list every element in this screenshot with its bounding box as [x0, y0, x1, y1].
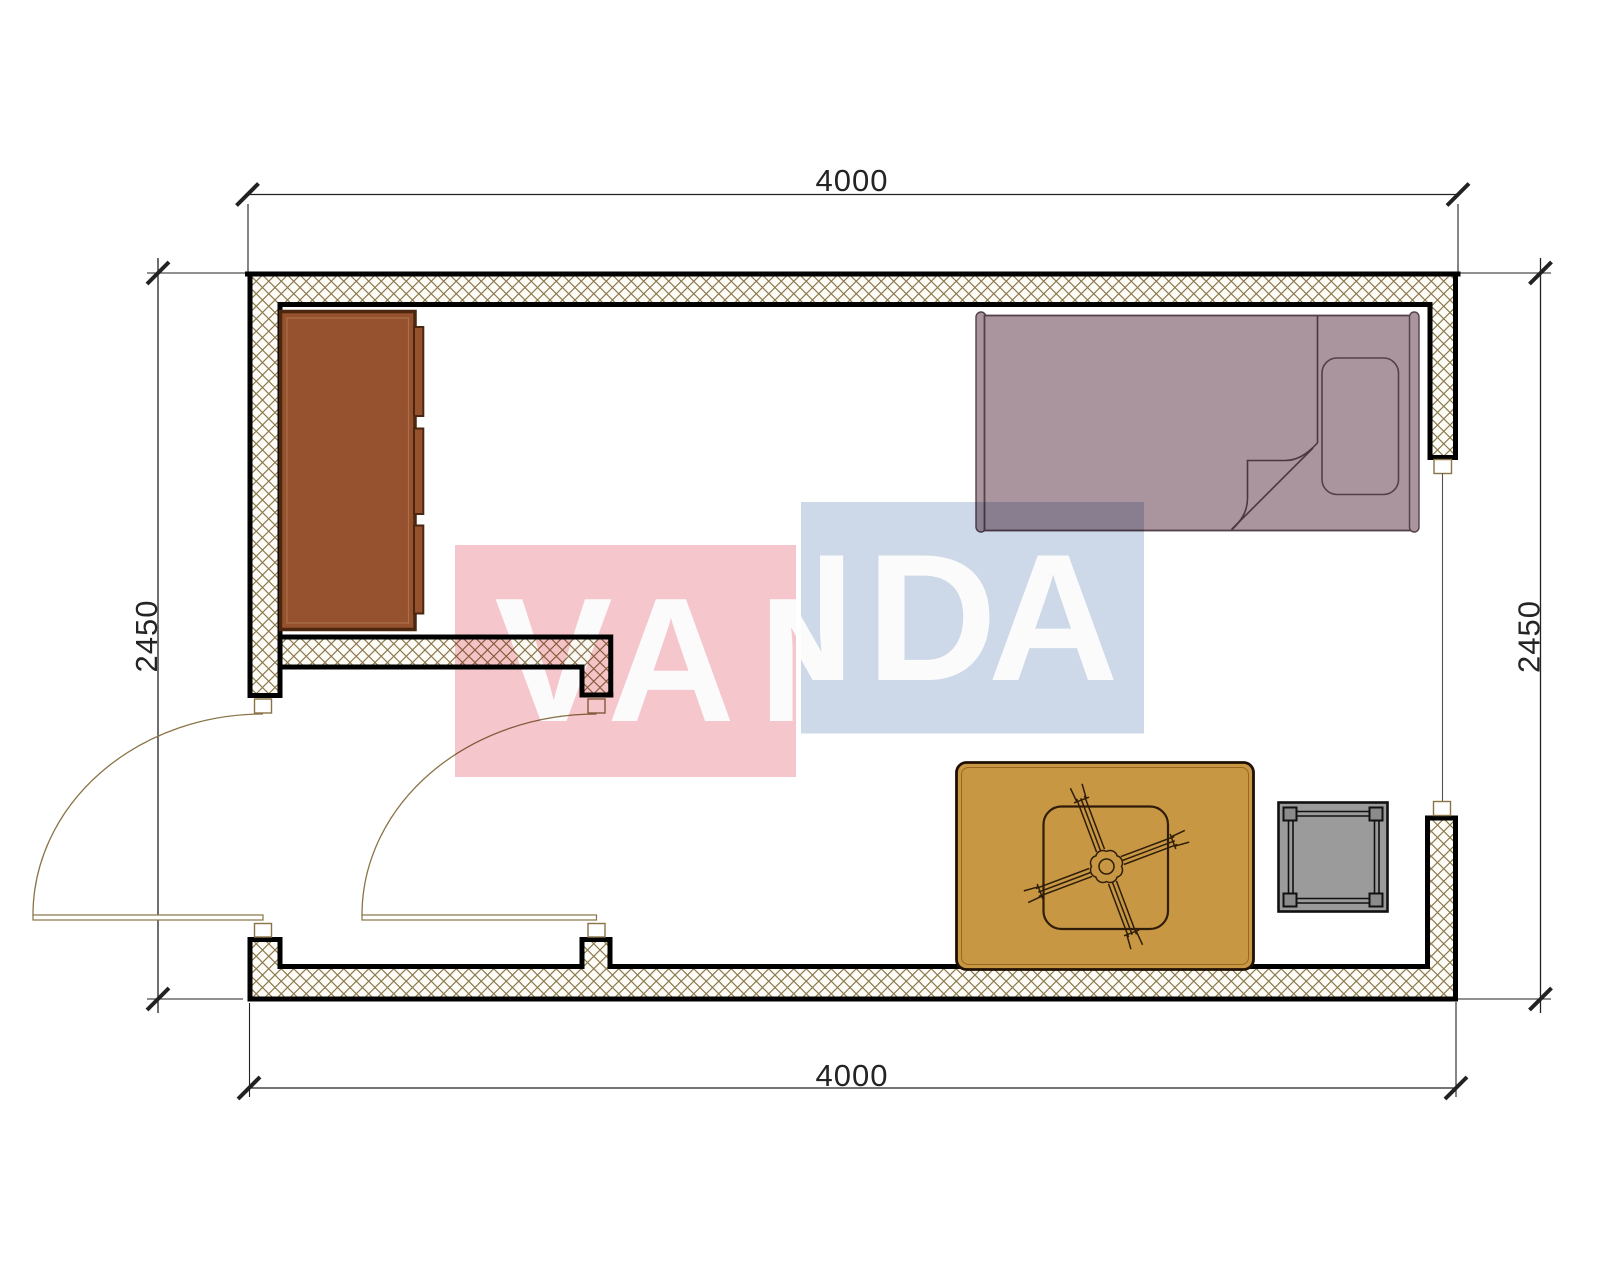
svg-text:D: D: [866, 517, 997, 719]
svg-text:2450: 2450: [129, 600, 164, 673]
svg-text:A: A: [607, 561, 735, 759]
svg-text:2450: 2450: [1512, 600, 1547, 673]
svg-text:V: V: [494, 561, 612, 759]
svg-text:4000: 4000: [816, 163, 889, 198]
svg-text:4000: 4000: [816, 1058, 889, 1093]
svg-text:A: A: [988, 517, 1119, 719]
